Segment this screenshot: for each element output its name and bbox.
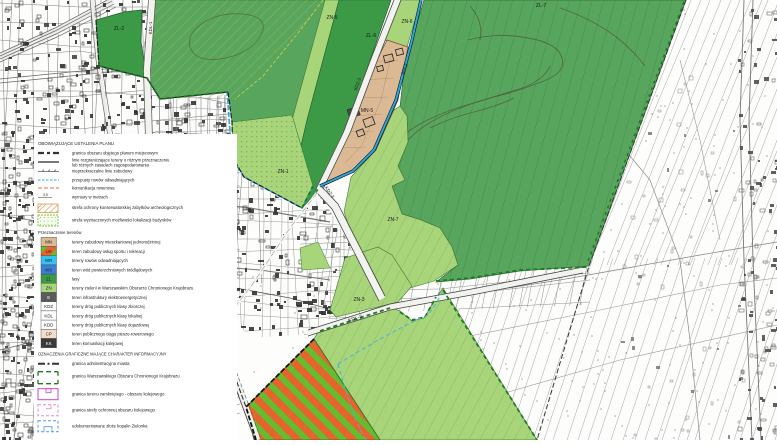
svg-text:E: E [47, 295, 50, 300]
svg-text:teren publicznego ciągu pieszo: teren publicznego ciągu pieszo-roweroweg… [72, 332, 154, 337]
svg-text:wymiary w metrach: wymiary w metrach [72, 195, 109, 200]
svg-text:3,5: 3,5 [43, 193, 48, 197]
svg-text:KDZ: KDZ [44, 304, 53, 309]
svg-text:przepusty rowów odwadniających: przepusty rowów odwadniających [72, 178, 135, 183]
svg-text:tereny dróg publicznych klasy: tereny dróg publicznych klasy zbiorczej [72, 304, 145, 309]
svg-text:US: US [46, 249, 52, 254]
svg-text:granica terenu zamkniętego - o: granica terenu zamkniętego - obszaru kol… [72, 392, 165, 397]
svg-text:WS: WS [45, 267, 52, 272]
svg-text:KDL-1: KDL-1 [148, 21, 153, 34]
svg-text:ZL-7: ZL-7 [536, 3, 547, 9]
svg-text:tereny dróg publicznych klasy: tereny dróg publicznych klasy lokalnej [72, 313, 142, 318]
svg-text:MN-5: MN-5 [361, 108, 373, 114]
svg-text:ZN-3: ZN-3 [353, 297, 364, 303]
svg-text:teren zabudowy usług sportu i: teren zabudowy usług sportu i rekreacji [72, 249, 145, 254]
svg-text:ZL: ZL [46, 277, 52, 282]
svg-text:granica strefy ochronnej obsza: granica strefy ochronnej obszaru kolejow… [72, 408, 156, 413]
svg-text:strefa ochrony konserwatorskie: strefa ochrony konserwatorskiej zabytków… [72, 205, 184, 210]
svg-text:granica Warszawskiego Obszaru: granica Warszawskiego Obszaru Chronioneg… [72, 374, 180, 379]
svg-text:udokumentowane złoże kopalin Z: udokumentowane złoże kopalin Zielonka [72, 424, 148, 429]
svg-text:strefa wyznaczonych możliwości: strefa wyznaczonych możliwości lokalizac… [72, 218, 172, 223]
svg-text:ZN-7: ZN-7 [387, 217, 398, 223]
svg-text:ZN-6: ZN-6 [401, 19, 412, 25]
svg-text:ZL-6: ZL-6 [366, 33, 377, 39]
svg-text:tereny zieleni w Warszawskim O: tereny zieleni w Warszawskim Obszarze Ch… [72, 286, 194, 291]
svg-text:WR: WR [45, 258, 52, 263]
svg-text:tereny rowów odwadniających: tereny rowów odwadniających [72, 258, 129, 263]
svg-text:granica administracyjna miasta: granica administracyjna miasta [72, 361, 130, 366]
svg-text:lasy: lasy [72, 277, 80, 282]
svg-text:ZN: ZN [46, 286, 52, 291]
svg-text:OBOWIĄZUJĄCE USTALENIA PLANU: OBOWIĄZUJĄCE USTALENIA PLANU [38, 141, 114, 146]
svg-text:ZN-1: ZN-1 [277, 169, 288, 175]
svg-text:ZN-5: ZN-5 [326, 15, 337, 21]
svg-text:teren infrastruktury elektroen: teren infrastruktury elektroenergetyczne… [72, 295, 147, 300]
svg-text:komunikacja rowerowa: komunikacja rowerowa [72, 186, 115, 191]
svg-text:teren komunikacji kolejowej: teren komunikacji kolejowej [72, 341, 123, 346]
svg-text:ZL-2: ZL-2 [114, 26, 125, 32]
svg-text:tereny dróg publicznych klasy: tereny dróg publicznych klasy dojazdowej [72, 323, 149, 328]
svg-text:nieprzekraczalne linie zabudow: nieprzekraczalne linie zabudowy [72, 169, 133, 174]
svg-text:CP: CP [46, 332, 52, 337]
svg-text:KK: KK [46, 341, 52, 346]
svg-text:lub różnych zasadach zagospoda: lub różnych zasadach zagospodarowania [72, 163, 149, 168]
svg-text:OZNACZENIA GRAFICZNE MAJĄCE CH: OZNACZENIA GRAFICZNE MAJĄCE CHARAKTER IN… [38, 352, 167, 357]
svg-text:teren wód powierzchniowych śró: teren wód powierzchniowych śródlądowych [72, 267, 153, 272]
svg-text:tereny zabudowy mieszkaniowej: tereny zabudowy mieszkaniowej jednorodzi… [72, 240, 161, 245]
svg-text:granica obszaru objętego plane: granica obszaru objętego planem miejscow… [72, 151, 158, 156]
svg-text:KDD: KDD [44, 323, 53, 328]
svg-text:Przeznaczenie terenów: Przeznaczenie terenów [38, 230, 83, 235]
svg-text:MN: MN [45, 240, 52, 245]
svg-text:KDL: KDL [44, 313, 53, 318]
